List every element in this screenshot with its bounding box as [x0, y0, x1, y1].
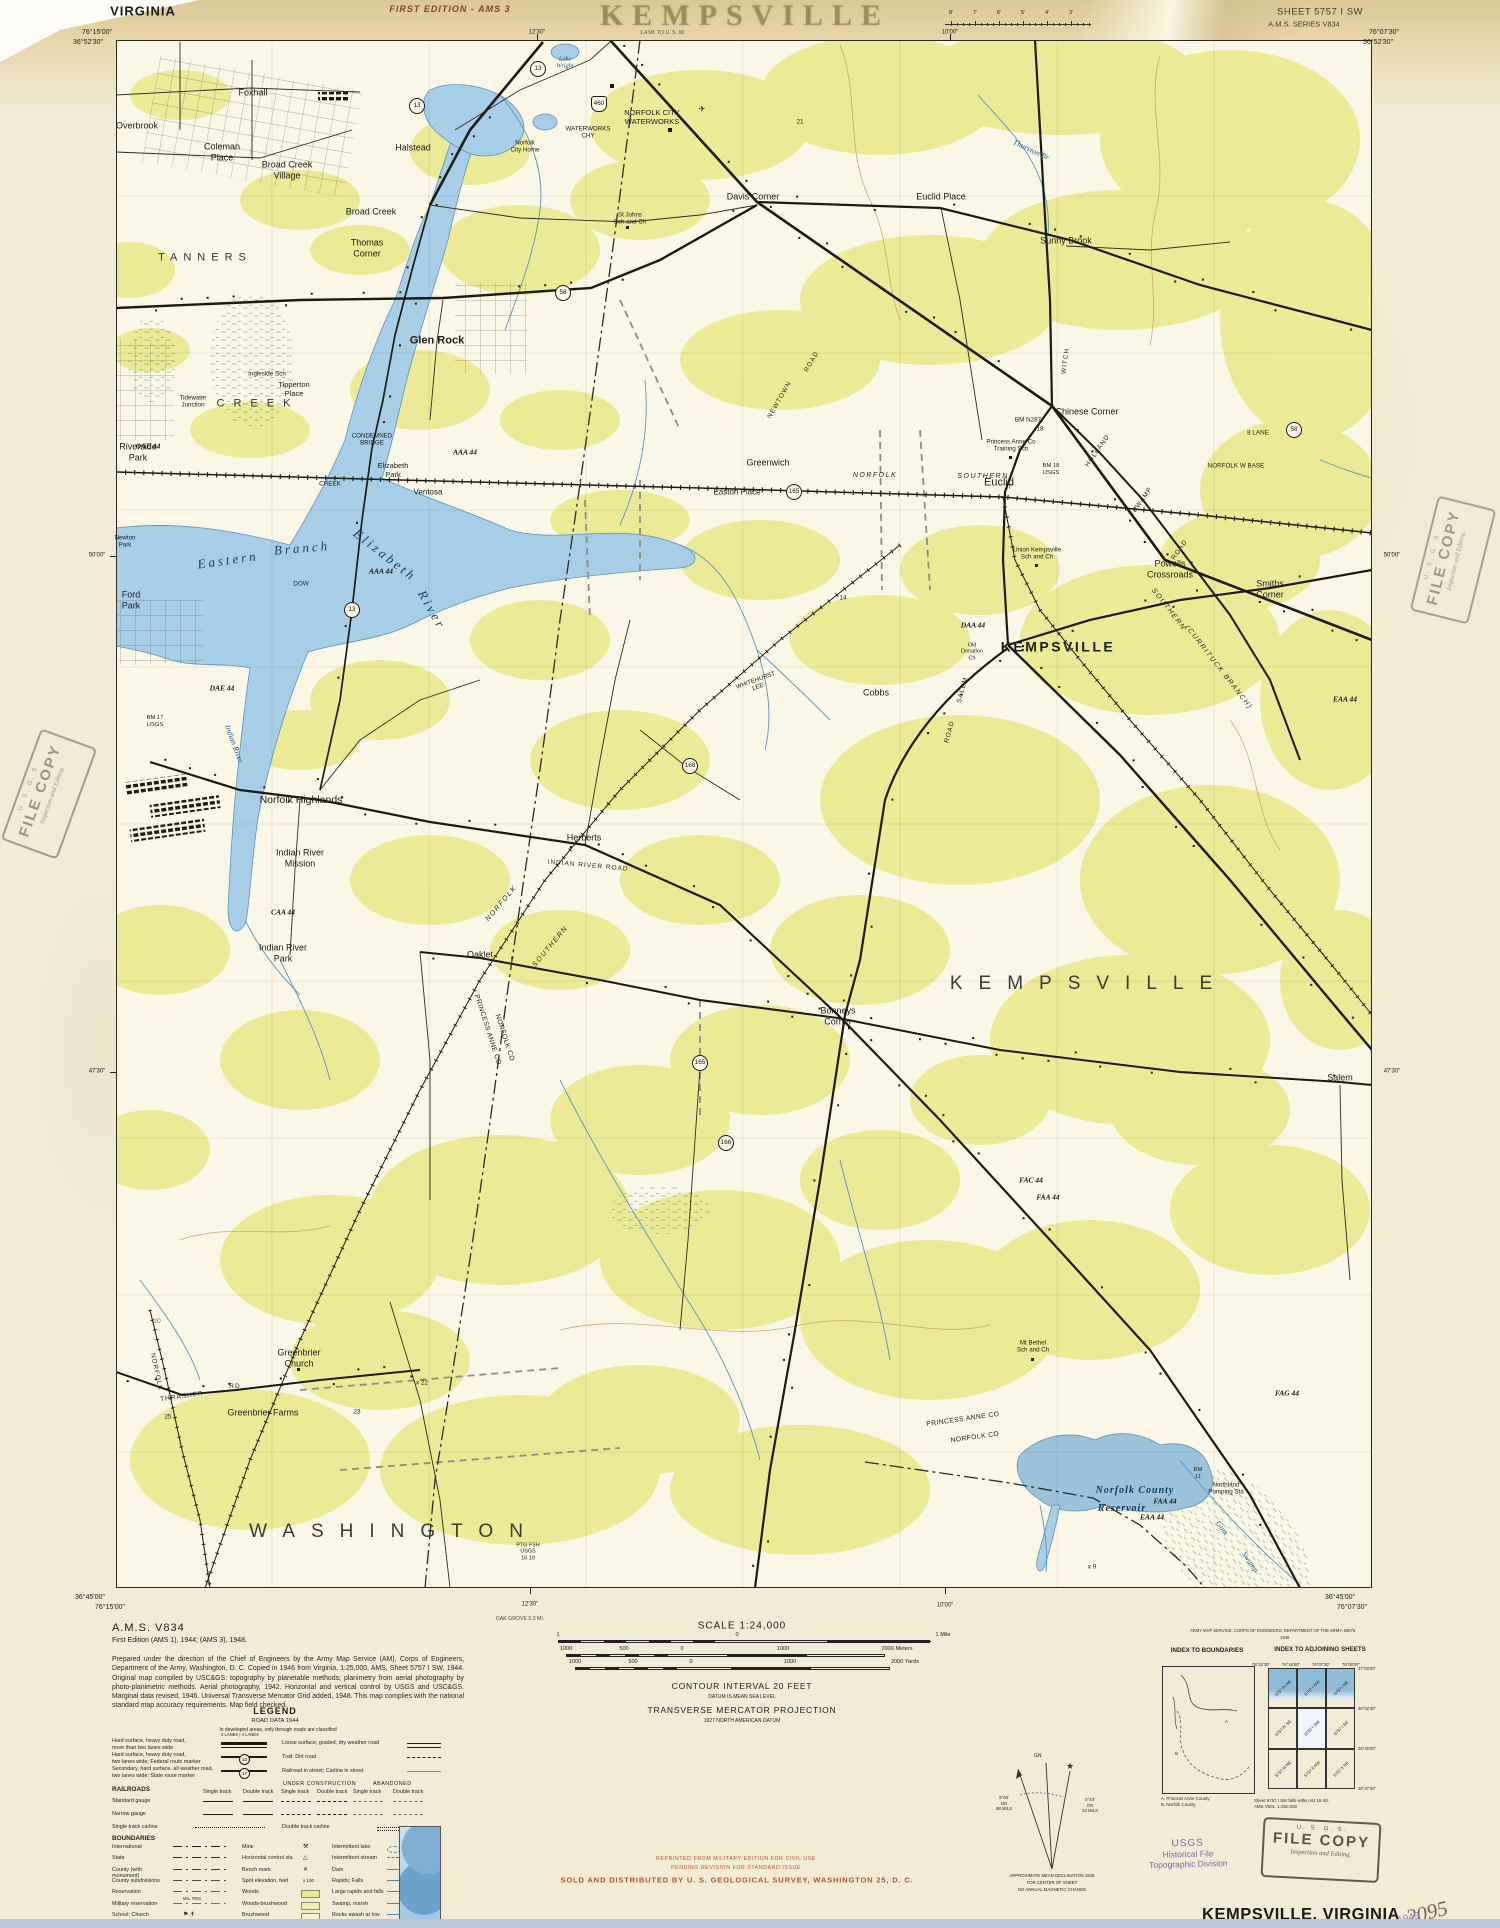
map-label: 50'00"	[89, 552, 106, 559]
file-copy-stamp-left: U. S. G. S. FILE COPY Inspection and Edi…	[1, 728, 98, 859]
map-label: Ventosa	[414, 487, 443, 496]
legend-item: Horizontal control sta	[242, 1855, 300, 1862]
edge-tick	[530, 1588, 531, 1594]
datum-note: DATUM IS MEAN SEA LEVEL	[708, 1694, 775, 1700]
hist-stamp-line3: Topographic Division	[1143, 1858, 1233, 1870]
legend-item: 13	[221, 1756, 267, 1763]
route-shield: 168	[682, 758, 698, 774]
map-label: Greenwich	[746, 458, 789, 469]
scale-tick-label: 1 Mile	[936, 1632, 951, 1638]
legend-item: 17	[221, 1770, 267, 1777]
map-label: FAA 44	[1036, 1194, 1059, 1203]
index-adjoining-title: INDEX TO ADJOINING SHEETS	[1274, 1646, 1365, 1653]
map-label: WATERWORKS CHY	[566, 126, 611, 141]
map-label: 23	[353, 1408, 360, 1415]
legend-item	[353, 1814, 383, 1815]
map-label: x 22	[416, 1379, 428, 1386]
legend: LEGEND ROAD DATA 1944 In developed areas…	[95, 1702, 447, 1928]
legend-item	[173, 1869, 228, 1870]
map-label: 12'30"	[522, 1601, 539, 1608]
legend-item	[393, 1801, 423, 1802]
adjoining-lat-label: 36°37'30"	[1358, 1786, 1376, 1791]
legend-item	[387, 1891, 399, 1892]
scale-tick-label: 500	[619, 1646, 628, 1652]
map-label: Broad Creek	[346, 207, 397, 218]
contour-interval: CONTOUR INTERVAL 20 FEET	[672, 1681, 813, 1691]
map-label: FAA 44	[1153, 1498, 1176, 1507]
map-label: Elizabeth Park	[378, 462, 409, 480]
map-label: x 9	[1088, 1563, 1096, 1570]
map-label: 25	[164, 1413, 171, 1420]
map-label: Newton Park	[115, 535, 136, 550]
map-label: Lake Wright	[556, 56, 573, 71]
reprint-note: REPRINTED FROM MILITARY EDITION FOR CIVI…	[656, 1856, 816, 1862]
sheet-title: KEMPSVILLE	[600, 0, 890, 33]
map-label: KEMPSVILLE	[950, 973, 1228, 995]
ams-edition: First Edition (AMS 1), 1944; (AMS 3), 19…	[112, 1637, 464, 1644]
legend-item	[173, 1903, 228, 1904]
map-label: ✈	[699, 104, 706, 113]
legend-item: RAILROADS	[112, 1786, 150, 1794]
map-label: OAK GROVE 5.3 MI.	[496, 1616, 544, 1622]
projection-note: TRANSVERSE MERCATOR PROJECTION	[648, 1705, 837, 1715]
legend-shoreline-inset	[399, 1826, 441, 1928]
ams-id: A.M.S. V834	[112, 1622, 464, 1634]
map-label: 10'00"	[942, 29, 959, 36]
map-label: OAE 44	[136, 443, 161, 452]
map-label: 36°45'00"	[1325, 1594, 1355, 1602]
map-label: 20	[153, 1318, 160, 1326]
map-label: Greenbrier Church	[277, 1347, 320, 1368]
topo-map-sheet: VIRGINIA FIRST EDITION - AMS 3 KEMPSVILL…	[0, 0, 1500, 1928]
map-label: AAA 44	[369, 568, 393, 577]
map-label: CREEK	[217, 398, 300, 411]
map-label: DAE 44	[210, 685, 235, 694]
scale-tick-label: 1000	[569, 1659, 581, 1665]
declination-caption-3: NO ANNUAL MAGNETIC CHANGE	[1018, 1887, 1086, 1892]
file-copy-stamp: U. S. G. S. FILE COPY Inspection and Edi…	[1261, 1817, 1382, 1883]
map-label: Smiths Corner	[1256, 578, 1284, 599]
legend-item	[281, 1814, 311, 1815]
sheet-number: SHEET 5757 I SW	[1277, 7, 1363, 18]
map-label: WASHINGTON	[249, 1521, 539, 1543]
adjoining-sheet-cell: 5757 III NE	[1268, 1749, 1297, 1789]
map-label: 47'30"	[89, 1068, 106, 1075]
map-label: Euclid Place	[916, 192, 966, 203]
legend-item	[195, 1827, 265, 1828]
legend-item: △	[303, 1855, 308, 1863]
map-label: Coleman Place	[204, 141, 240, 162]
boundaries-sketch	[1163, 1667, 1254, 1793]
map-label: Norfolk Highlands	[260, 794, 343, 806]
legend-item: ⚒	[303, 1844, 308, 1852]
map-label: 36°52'30"	[73, 39, 103, 47]
legend-item: Bench mark	[242, 1867, 300, 1874]
map-label: 21	[796, 118, 803, 125]
legend-item: Trail; Dirt road	[282, 1754, 400, 1761]
adjoining-sheet-cell: 5757 I SE	[1326, 1708, 1355, 1748]
legend-item: Mine	[242, 1844, 300, 1851]
map-label: NORFOLK CITY WATERWORKS	[624, 109, 679, 127]
map-label: PTG FSH USGS 16 19	[516, 1542, 539, 1561]
adjoining-lat-label: 37°00'00"	[1358, 1666, 1376, 1671]
legend-item	[221, 1742, 267, 1748]
army-year: 1948	[1280, 1635, 1289, 1640]
map-label: 76°07'30"	[1337, 1604, 1367, 1612]
legend-item	[353, 1801, 383, 1802]
map-label: Powells Crossroads	[1147, 558, 1193, 579]
adjoining-lon-label: 76°15'00"	[1282, 1662, 1300, 1667]
map-label: 76°15'00"	[95, 1604, 125, 1612]
army-credit: ARMY MAP SERVICE, CORPS OF ENGINEERS, DE…	[1190, 1628, 1355, 1633]
legend-item: Secondary, hard surface, all weather roa…	[112, 1766, 230, 1780]
legend-item	[243, 1801, 273, 1802]
map-label: Easton Place	[713, 487, 760, 496]
map-label: 47'30"	[1384, 1068, 1401, 1075]
margin-mini-ruler: 8'7'6'5'4'3'	[945, 12, 1091, 28]
legend-item: Single track	[353, 1789, 381, 1796]
legend-subtitle: ROAD DATA 1944	[251, 1718, 298, 1724]
legend-item: Single track carline	[112, 1824, 158, 1831]
legend-item	[393, 1814, 423, 1815]
ruler-tick-label: 7'	[973, 10, 977, 16]
boundary-marker-b: B	[1175, 1751, 1178, 1757]
legend-item: Double track	[393, 1789, 423, 1796]
route-shield: 13	[409, 98, 425, 114]
map-label: St Johns Sch and Ch	[614, 212, 646, 227]
scale-tick-label: 2000 Yards	[891, 1659, 919, 1665]
legend-item	[301, 1902, 320, 1910]
legend-item	[387, 1914, 399, 1915]
declination-caption-2: FOR CENTER OF SHEET	[1027, 1880, 1078, 1885]
legend-item	[173, 1880, 228, 1881]
adjoining-lat-label: 36°45'00"	[1358, 1746, 1376, 1751]
map-label: Ford Park	[122, 589, 141, 610]
map-label: SOUTHERN	[957, 473, 1008, 481]
legend-item	[407, 1757, 441, 1758]
legend-item: Dam	[332, 1867, 388, 1874]
map-label: CONDEMNED BRIDGE	[352, 433, 393, 448]
declination-right-value: 0°44' OR 13 MILS	[1082, 1797, 1098, 1814]
legend-item: BOUNDARIES	[112, 1835, 155, 1843]
declination-caption-1: APPROXIMATE MEAN DECLINATION 1948	[1010, 1873, 1095, 1878]
legend-item: Reservation	[112, 1889, 170, 1896]
map-label: Overbrook	[116, 121, 158, 132]
state-label: VIRGINIA	[110, 4, 176, 19]
index-boundaries-box: A B	[1162, 1666, 1255, 1794]
map-label: CAA 44	[271, 909, 295, 918]
map-label: AAA 44	[453, 449, 477, 458]
adjoining-sheet-cell: 5757 I SW	[1297, 1708, 1326, 1748]
edge-tick	[110, 1072, 116, 1073]
legend-item: Woods	[242, 1889, 300, 1896]
route-shield: 460	[591, 96, 607, 112]
map-label: Davis Corner	[727, 192, 780, 203]
index-boundaries-title: INDEX TO BOUNDARIES	[1171, 1647, 1243, 1654]
adjoining-note: Sheet 5757 I SW falls within NJ 18-10. A…	[1254, 1798, 1329, 1810]
route-shield: 165	[786, 484, 802, 500]
boundaries-caption: A. Princess Anne County B. Norfolk Count…	[1161, 1796, 1210, 1808]
scale-bar	[566, 1654, 885, 1657]
map-label: Thomas Corner	[351, 237, 384, 258]
legend-item: Loose surface, graded, dry weather road	[282, 1740, 400, 1747]
map-label: EAA 44	[1333, 696, 1357, 705]
adjoining-sheet-cell: 5757 I NE	[1326, 1668, 1355, 1708]
map-label: BM 18 USGS	[1043, 463, 1060, 477]
adjoining-lon-label: 76°22'30"	[1252, 1662, 1270, 1667]
map-label: BM 11	[1194, 1467, 1203, 1481]
edition-label: FIRST EDITION - AMS 3	[389, 4, 510, 14]
map-label: Greenbrier Farms	[227, 1408, 298, 1419]
legend-item	[407, 1743, 441, 1748]
map-label: TANNERS	[158, 252, 252, 265]
legend-item	[387, 1869, 399, 1870]
legend-item: Military reservation	[112, 1901, 170, 1908]
map-label: Cobbs	[863, 688, 889, 699]
map-label: 76°15'00"	[82, 29, 112, 37]
map-label: Bonneys Corner	[820, 1005, 855, 1026]
map-label: 10'00"	[937, 1602, 954, 1609]
map-label: DOW	[293, 580, 308, 587]
datum-note-2: 1927 NORTH AMERICAN DATUM	[704, 1718, 781, 1724]
map-label: Broad Creek Village	[262, 159, 313, 180]
scale-tick-label: 1000	[784, 1659, 796, 1665]
map-label: Indian River Park	[259, 942, 307, 963]
map-label: Reservoir	[1098, 1503, 1146, 1515]
map-label: NORFOLK	[853, 472, 897, 480]
legend-item: x 100	[303, 1878, 314, 1884]
map-label: Halstead	[395, 143, 431, 154]
legend-item	[301, 1890, 320, 1898]
adjoining-sheet-cell: 5757 IV SE	[1268, 1708, 1297, 1748]
ruler-tick-label: 3'	[1069, 10, 1073, 16]
map-label: Northland Pumping Sta	[1208, 1482, 1243, 1497]
map-label: Herberts	[567, 833, 602, 844]
adjoining-sheet-cell: 5757 II NE	[1326, 1749, 1355, 1789]
map-label: 50'00"	[1384, 552, 1401, 559]
map-label: Princess Anne Co Training Sch	[986, 439, 1035, 454]
map-label: Tidewater Junction	[180, 395, 207, 410]
legend-item: Woods-brushwood	[242, 1901, 300, 1908]
legend-item	[281, 1801, 311, 1802]
edge-tick	[110, 556, 116, 557]
route-shield: 13	[530, 61, 546, 77]
legend-item: Railroad in street; Carline in street	[282, 1768, 400, 1775]
legend-item: MIL. RES.	[183, 1896, 202, 1901]
index-adjoining-grid: 5757 IV NE5757 I NW5757 I NE5757 IV SE57…	[1268, 1668, 1355, 1789]
map-label: EAA 44	[1140, 1514, 1164, 1523]
map-label: Union Kempsville Sch and Ch	[1013, 547, 1061, 562]
route-shield: 58	[1286, 422, 1302, 438]
svg-text:★: ★	[1066, 1761, 1074, 1771]
legend-item: Single track	[281, 1789, 309, 1796]
map-label: Tipperton Place	[278, 381, 309, 399]
legend-item	[407, 1771, 441, 1772]
legend-item	[317, 1801, 347, 1802]
legend-item	[243, 1814, 273, 1815]
map-label: 8 LANE	[1247, 429, 1269, 436]
ruler-tick-label: 4'	[1045, 10, 1049, 16]
ruler-tick-label: 5'	[1021, 10, 1025, 16]
legend-item: Swamp, marsh	[332, 1901, 388, 1908]
legend-item: ABANDONED	[373, 1781, 412, 1788]
legend-title: LEGEND	[253, 1706, 297, 1716]
scale-tick-label: 0	[689, 1659, 692, 1665]
adjoining-lat-label: 36°52'30"	[1358, 1706, 1376, 1711]
legend-item: International	[112, 1844, 170, 1851]
map-label: Glen Rock	[410, 335, 464, 348]
legend-item: County subdivisions	[112, 1878, 170, 1885]
legend-item: Brushwood	[242, 1912, 300, 1919]
legend-item: Large rapids and falls	[332, 1889, 388, 1896]
scan-edge-strip	[0, 1919, 1500, 1928]
map-label: 36°45'00"	[75, 1594, 105, 1602]
map-label: 76°07'30"	[1369, 29, 1399, 37]
scale-tick-label: 1	[556, 1632, 559, 1638]
scale-block: SCALE 1:24,000 CONTOUR INTERVAL 20 FEET …	[545, 1616, 975, 1736]
declination-diagram: ★ GN 5°00' OR 88 MILS 0°44' OR 13 MILS A…	[990, 1755, 1114, 1895]
map-label: FAG 44	[1275, 1390, 1299, 1399]
legend-item	[387, 1903, 399, 1904]
legend-item: Double track	[243, 1789, 273, 1796]
route-shield: 165	[692, 1055, 708, 1071]
map-label: CREEK	[319, 480, 341, 487]
scale-bar	[575, 1667, 890, 1670]
map-label: NORFOLK W BASE	[1208, 462, 1265, 469]
legend-item	[173, 1891, 228, 1892]
legend-item: 3 LANES | 4 LANES	[221, 1732, 259, 1737]
map-label: Norfolk City Home	[511, 140, 540, 155]
legend-item	[387, 1880, 399, 1881]
scale-bar	[558, 1640, 930, 1643]
usgs-historical-stamp: USGS Historical File Topographic Divisio…	[1143, 1837, 1234, 1870]
index-block: ARMY MAP SERVICE, CORPS OF ENGINEERS, DE…	[1130, 1622, 1420, 1822]
legend-item	[317, 1814, 347, 1815]
map-label: Oaklet	[467, 950, 493, 961]
scale-tick-label: 2000 Meters	[881, 1646, 912, 1652]
boundary-marker-a: A	[1225, 1719, 1228, 1725]
legend-item: Spot elevation, feet	[242, 1878, 300, 1885]
declination-arrows: ★	[990, 1755, 1114, 1873]
adjoining-lon-label: 76°07'30"	[1312, 1662, 1330, 1667]
map-label: DAA 44	[961, 622, 985, 631]
map-label: KEMPSVILLE	[1001, 639, 1115, 656]
legend-item: Intermittent stream	[332, 1855, 388, 1862]
map-label: 18	[1036, 425, 1043, 432]
legend-item: Intermittent lake	[332, 1844, 388, 1851]
map-label: 17	[1004, 483, 1011, 490]
legend-item	[203, 1801, 233, 1802]
map-label: 36°52'30"	[1363, 39, 1393, 47]
map-label: 12'30"	[529, 29, 546, 36]
adjoining-sheet-cell: 5757 IV NE	[1268, 1668, 1297, 1708]
legend-item: Double track carline	[282, 1824, 330, 1831]
grid-north-label: GN	[1034, 1753, 1042, 1760]
route-shield: 58	[555, 285, 571, 301]
legend-item: Hard surface, heavy duty road, more than…	[112, 1738, 230, 1752]
edge-tick	[945, 1588, 946, 1594]
map-label: Foxhall	[238, 88, 267, 99]
ruler-tick-label: 6'	[997, 10, 1001, 16]
legend-item: Standard gauge	[112, 1798, 150, 1805]
route-shield: 13	[344, 602, 360, 618]
route-shield: 166	[718, 1135, 734, 1151]
scale-tick-label: 1000	[560, 1646, 572, 1652]
series-label: A.M.S. SERIES V834	[1268, 20, 1340, 29]
scale-tick-label: 1000	[777, 1646, 789, 1652]
map-label: Chinese Corner	[1055, 407, 1118, 418]
map-label: 14	[839, 594, 846, 601]
legend-item: School; Church	[112, 1912, 170, 1919]
map-label: Old Donation Ch	[961, 642, 983, 661]
map-label: BM N287	[1015, 416, 1041, 423]
legend-item: Rapids; Falls	[332, 1878, 388, 1885]
legend-item	[203, 1814, 233, 1815]
adjoining-sheet-cell: 5757 II NW	[1297, 1749, 1326, 1789]
map-label: Sunny Brook	[1040, 236, 1092, 247]
legend-item: UNDER CONSTRUCTION	[283, 1781, 356, 1788]
legend-item	[173, 1846, 228, 1847]
scale-tick-label: 0	[735, 1632, 738, 1638]
ruler-tick-label: 8'	[949, 10, 953, 16]
legend-item: Hard surface, heavy duty road, two lanes…	[112, 1752, 230, 1766]
distribution-note: SOLD AND DISTRIBUTED BY U. S. GEOLOGICAL…	[560, 1876, 913, 1885]
map-label: 1.4 MI. TO U. S. 60	[640, 30, 685, 36]
legend-item: Double track	[317, 1789, 347, 1796]
map-label: BM 17 USGS	[147, 715, 164, 729]
declination-left-value: 5°00' OR 88 MILS	[996, 1795, 1012, 1812]
map-label: Salem	[1327, 1073, 1353, 1084]
scale-label: SCALE 1:24,000	[698, 1621, 787, 1632]
legend-item: Narrow gauge	[112, 1811, 146, 1818]
map-label: Mt Bethel Sch and Ch	[1017, 1340, 1049, 1355]
file-copy-stamp-right: U. S. G. S. FILE COPY Inspection and Edi…	[1410, 495, 1497, 624]
legend-item: Single track	[203, 1789, 231, 1796]
map-label: Norfolk County	[1096, 1485, 1175, 1497]
legend-item	[173, 1857, 228, 1858]
map-label: Ingleside Sch	[248, 370, 286, 377]
ams-block: A.M.S. V834 First Edition (AMS 1), 1944;…	[112, 1622, 464, 1711]
legend-item	[387, 1857, 399, 1858]
adjoining-sheet-cell: 5757 I NW	[1297, 1668, 1326, 1708]
legend-item: ✕	[303, 1867, 308, 1875]
map-label: FAC 44	[1019, 1177, 1043, 1186]
scale-tick-label: 0	[680, 1646, 683, 1652]
revision-note: PENDING REVISION FOR STANDARD ISSUE	[671, 1865, 801, 1871]
legend-item: State	[112, 1855, 170, 1862]
map-label: RD	[229, 1383, 240, 1391]
scale-tick-label: 500	[628, 1659, 637, 1665]
map-label: Indian River Mission	[276, 847, 324, 868]
